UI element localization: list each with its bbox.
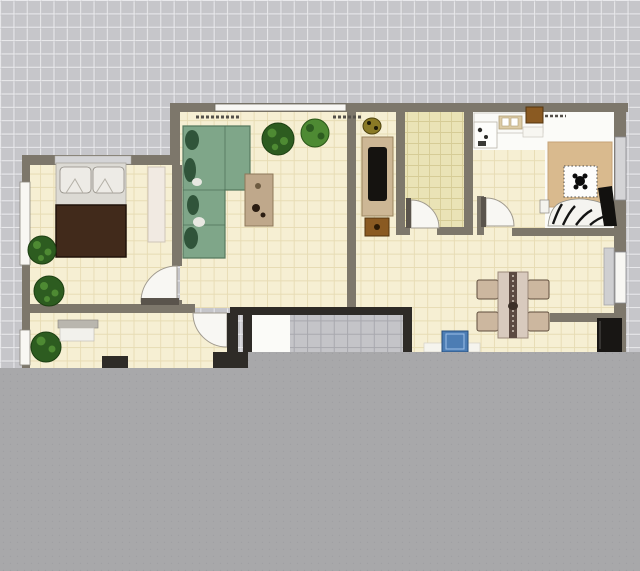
bedroom-rug[interactable] bbox=[148, 167, 165, 242]
side-stool[interactable] bbox=[540, 200, 549, 213]
sofa-throw bbox=[187, 195, 199, 215]
wall-living-divider bbox=[347, 112, 356, 308]
dining-chair[interactable] bbox=[477, 280, 498, 299]
potted-plant[interactable] bbox=[31, 332, 61, 362]
kitchen-sink[interactable] bbox=[474, 122, 497, 148]
wall-storage-right bbox=[464, 112, 473, 235]
window-living-top bbox=[215, 104, 346, 111]
hallway-door-leaf[interactable] bbox=[227, 313, 238, 368]
sofa-throw bbox=[184, 227, 198, 249]
overlay-dot-texture bbox=[0, 352, 640, 571]
wall-storage-left bbox=[396, 112, 405, 235]
bathroom-tile-floor bbox=[290, 315, 403, 352]
double-bed[interactable] bbox=[56, 205, 126, 257]
dining-chair[interactable] bbox=[477, 312, 498, 331]
sofa-throw bbox=[184, 158, 196, 182]
sofa-pillow bbox=[192, 178, 202, 186]
coffee-table[interactable] bbox=[245, 174, 273, 226]
side-counter[interactable] bbox=[604, 248, 614, 305]
floor-plan-canvas[interactable] bbox=[0, 0, 640, 571]
wall-bathroom-right bbox=[403, 307, 412, 352]
fridge[interactable] bbox=[597, 318, 622, 352]
dining-table[interactable] bbox=[498, 272, 528, 338]
media-box[interactable] bbox=[365, 218, 389, 236]
wall-living-left bbox=[170, 103, 180, 163]
shelf-box[interactable] bbox=[526, 107, 543, 123]
wall-bathroom-top bbox=[230, 307, 412, 315]
potted-plant[interactable] bbox=[301, 119, 329, 147]
wall-bottom-stub-b bbox=[102, 356, 128, 368]
kitchen-door-leaf[interactable] bbox=[481, 197, 486, 227]
window-lower-left bbox=[20, 330, 30, 365]
dining-chair[interactable] bbox=[528, 312, 549, 331]
low-cabinet-top[interactable] bbox=[58, 320, 98, 328]
viewport-overlay-panel bbox=[0, 352, 640, 571]
wall-south-right bbox=[512, 228, 614, 236]
potted-plant[interactable] bbox=[262, 123, 294, 155]
sofa-pillow bbox=[193, 217, 205, 227]
bedroom-door-leaf[interactable] bbox=[141, 298, 179, 305]
dining-chair[interactable] bbox=[528, 280, 549, 299]
low-cabinet[interactable] bbox=[60, 328, 94, 341]
sitting-room bbox=[540, 142, 617, 226]
potted-item[interactable] bbox=[363, 118, 381, 134]
pillow[interactable] bbox=[93, 167, 124, 193]
wall-bedroom-right-upper bbox=[172, 165, 182, 266]
wall-storage-bottom-b bbox=[437, 227, 473, 235]
window-dining-right bbox=[615, 252, 626, 303]
potted-plant[interactable] bbox=[34, 276, 64, 306]
wall-storage-bottom-a bbox=[396, 227, 410, 235]
sofa-throw bbox=[185, 130, 199, 150]
storage-door-leaf[interactable] bbox=[406, 198, 411, 228]
stove[interactable] bbox=[499, 116, 522, 129]
window-sitting-right bbox=[615, 137, 626, 200]
potted-plant[interactable] bbox=[28, 236, 56, 264]
kitchen-shelf[interactable] bbox=[523, 127, 543, 137]
television[interactable] bbox=[368, 147, 387, 201]
